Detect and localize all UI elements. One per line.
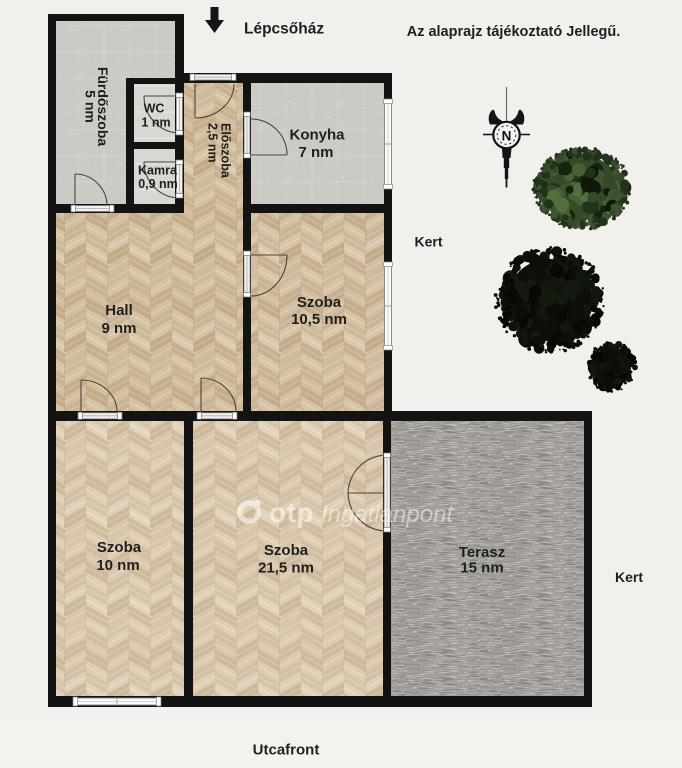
svg-text:15 nm: 15 nm xyxy=(460,560,503,577)
svg-text:Szoba: Szoba xyxy=(97,539,142,556)
svg-text:0,9 nm: 0,9 nm xyxy=(138,177,178,191)
svg-text:10 nm: 10 nm xyxy=(96,557,139,574)
svg-text:Lépcsőház: Lépcsőház xyxy=(244,21,324,38)
svg-text:Kamra: Kamra xyxy=(138,164,178,178)
svg-text:Terasz: Terasz xyxy=(459,544,505,561)
svg-text:5 nm: 5 nm xyxy=(83,90,99,123)
svg-text:Előszoba: Előszoba xyxy=(219,123,233,179)
svg-text:Konyha: Konyha xyxy=(289,127,345,144)
svg-text:21,5 nm: 21,5 nm xyxy=(258,560,314,577)
svg-text:Szoba: Szoba xyxy=(297,294,342,311)
svg-text:N: N xyxy=(502,129,512,144)
svg-text:WC: WC xyxy=(144,102,165,116)
svg-text:Ingatlanpont: Ingatlanpont xyxy=(321,501,454,528)
svg-text:Az alaprajz tájékoztató Jelleg: Az alaprajz tájékoztató Jellegű. xyxy=(407,24,621,40)
svg-text:1 nm: 1 nm xyxy=(141,116,170,130)
svg-text:Kert: Kert xyxy=(615,569,643,585)
svg-text:otp: otp xyxy=(269,497,314,528)
svg-text:Szoba: Szoba xyxy=(264,542,309,559)
svg-text:2,5 nm: 2,5 nm xyxy=(206,123,220,163)
svg-text:Hall: Hall xyxy=(105,302,133,319)
svg-text:Utcafront: Utcafront xyxy=(253,742,320,759)
svg-text:7 nm: 7 nm xyxy=(298,144,333,161)
svg-text:9 nm: 9 nm xyxy=(101,320,136,337)
svg-text:Kert: Kert xyxy=(414,234,442,250)
svg-text:10,5 nm: 10,5 nm xyxy=(291,311,347,328)
